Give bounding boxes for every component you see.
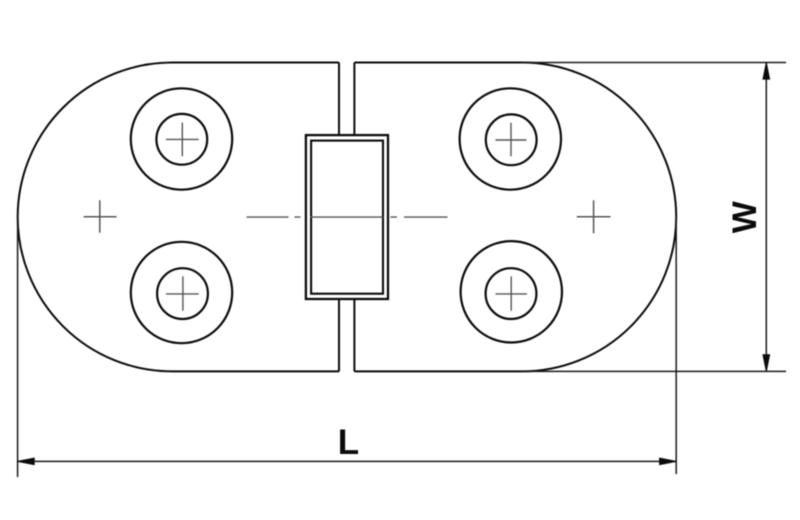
svg-text:L: L bbox=[338, 423, 359, 462]
svg-text:W: W bbox=[726, 200, 764, 233]
